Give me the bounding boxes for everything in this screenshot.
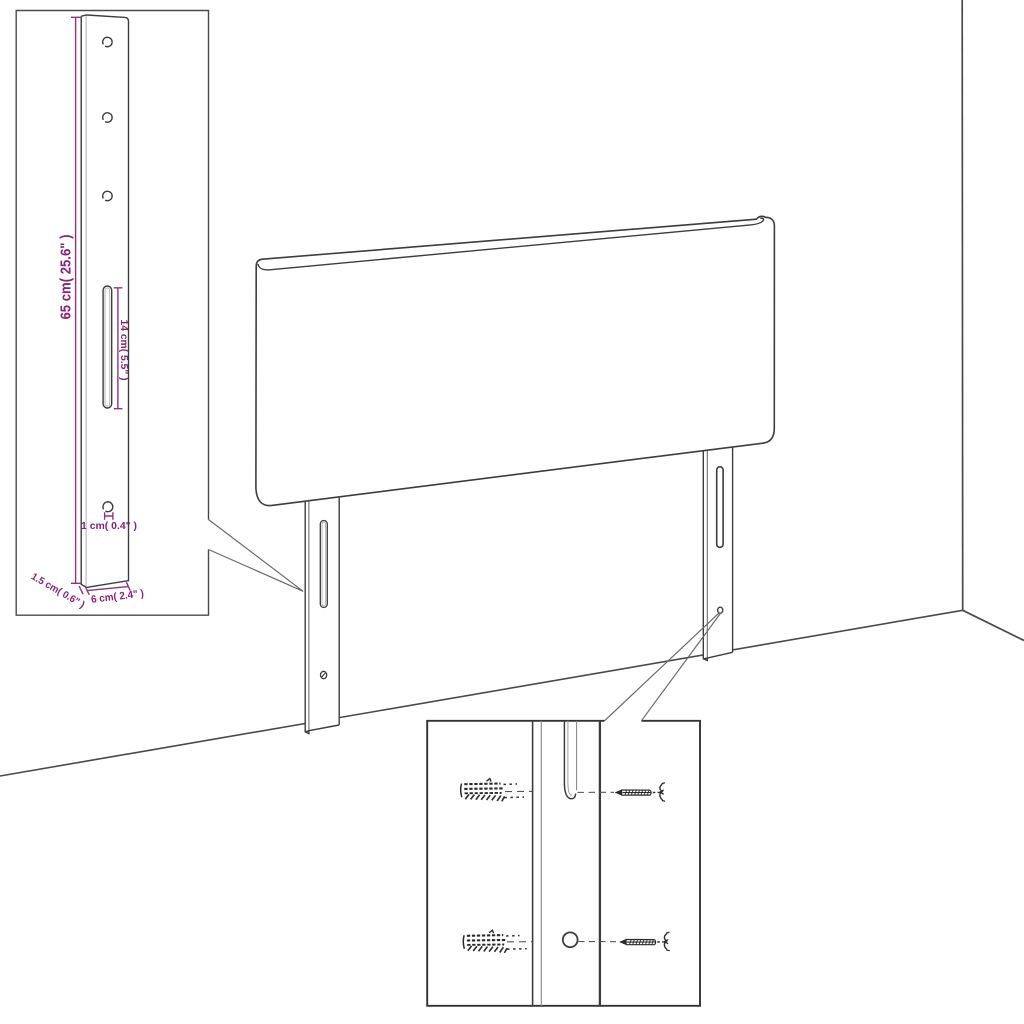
- svg-text:6 cm( 2.4" ): 6 cm( 2.4" ): [90, 588, 144, 606]
- svg-text:1 cm( 0.4" ): 1 cm( 0.4" ): [81, 521, 137, 532]
- svg-text:14 cm( 5.5" ): 14 cm( 5.5" ): [118, 320, 129, 381]
- svg-text:65 cm( 25.6" ): 65 cm( 25.6" ): [58, 234, 74, 319]
- svg-text:1.5 cm( 0.6" ): 1.5 cm( 0.6" ): [29, 571, 86, 611]
